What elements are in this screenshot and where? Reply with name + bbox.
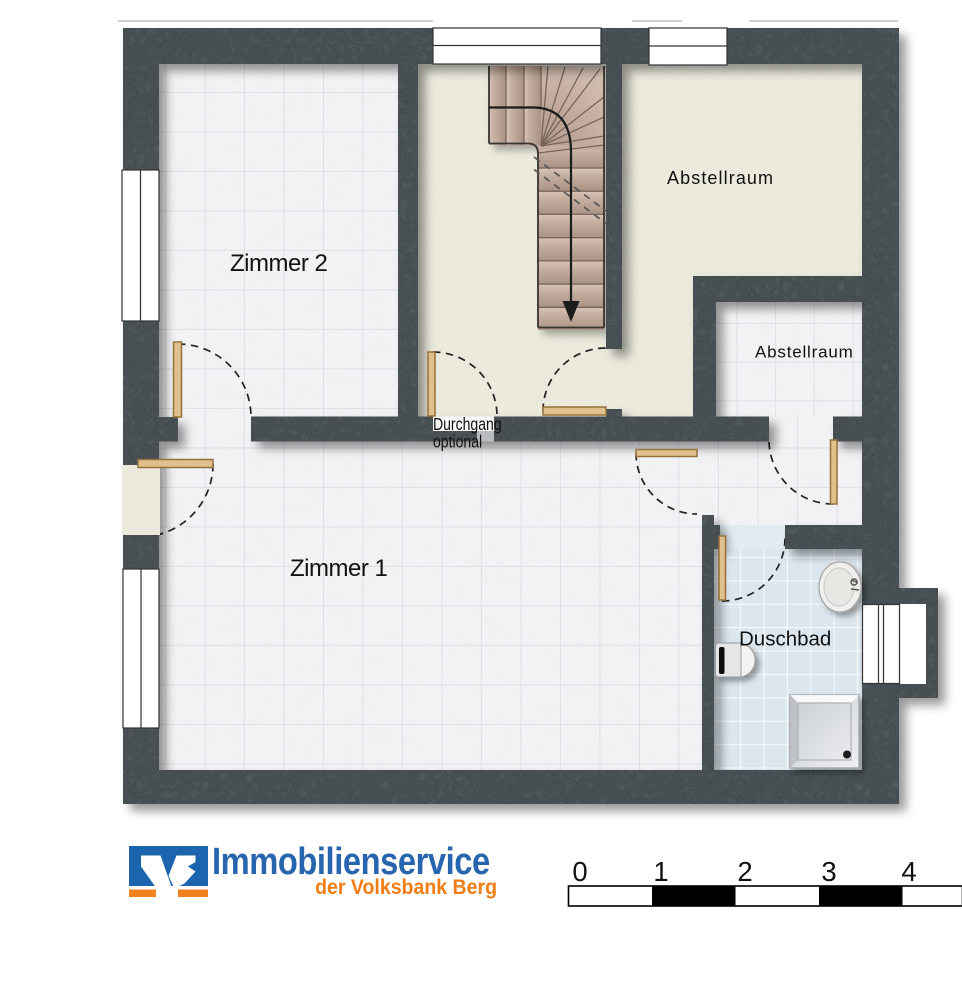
- svg-text:Duschbad: Duschbad: [739, 628, 831, 651]
- svg-text:1: 1: [653, 856, 668, 887]
- svg-text:Abstellraum: Abstellraum: [755, 343, 854, 362]
- svg-text:optional: optional: [433, 432, 482, 452]
- svg-text:2: 2: [737, 856, 752, 887]
- svg-text:Zimmer 2: Zimmer 2: [230, 250, 327, 277]
- svg-text:3: 3: [821, 856, 836, 887]
- svg-text:0: 0: [572, 856, 587, 887]
- svg-text:Zimmer 1: Zimmer 1: [290, 555, 387, 582]
- svg-text:Abstellraum: Abstellraum: [667, 168, 774, 188]
- svg-text:4: 4: [901, 856, 916, 887]
- svg-text:der Volksbank Berg: der Volksbank Berg: [315, 876, 497, 899]
